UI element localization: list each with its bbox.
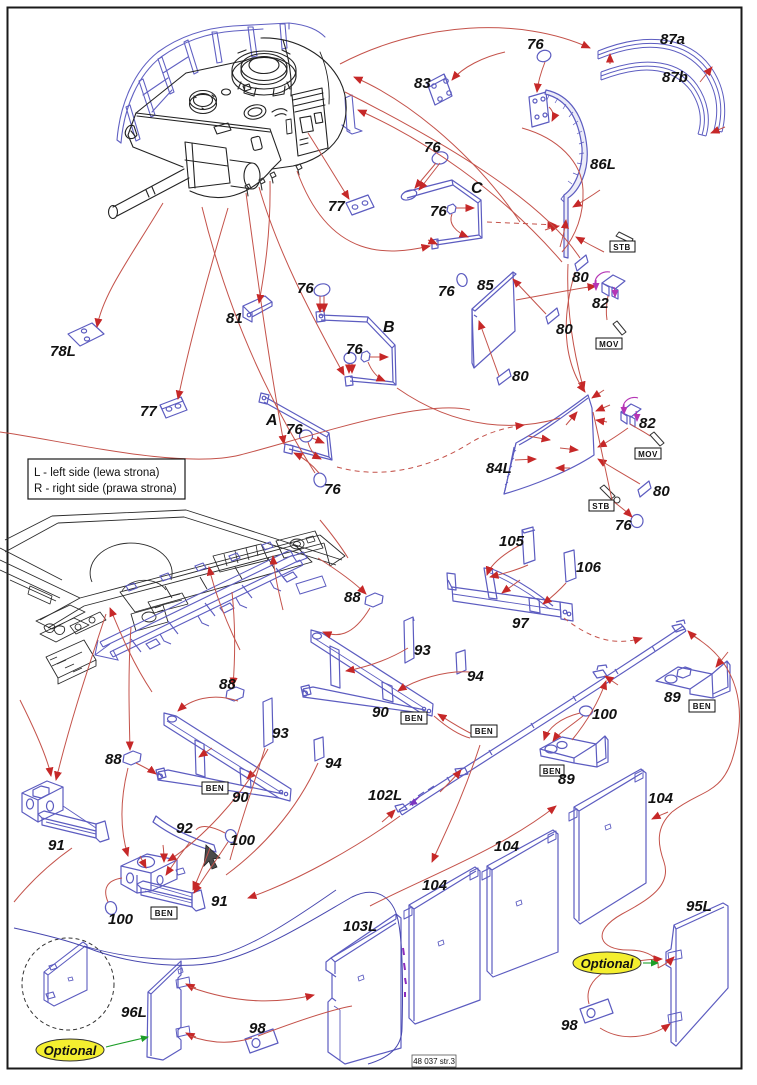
svg-text:R - right side (prawa strona): R - right side (prawa strona) <box>34 483 177 495</box>
svg-text:80: 80 <box>556 321 573 338</box>
svg-text:91: 91 <box>48 837 65 854</box>
svg-text:88: 88 <box>344 589 361 606</box>
svg-text:STB: STB <box>613 243 631 252</box>
svg-text:89: 89 <box>664 689 681 706</box>
svg-text:103L: 103L <box>343 918 377 935</box>
svg-text:B: B <box>383 319 395 336</box>
svg-text:BEN: BEN <box>693 702 711 711</box>
svg-text:MOV: MOV <box>599 340 619 349</box>
svg-text:85: 85 <box>477 277 494 294</box>
svg-text:76: 76 <box>286 421 303 438</box>
svg-text:BEN: BEN <box>155 909 173 918</box>
svg-text:91: 91 <box>211 893 228 910</box>
svg-text:90: 90 <box>372 704 389 721</box>
svg-text:76: 76 <box>430 203 447 220</box>
svg-text:104: 104 <box>494 838 520 855</box>
svg-text:BEN: BEN <box>405 714 423 723</box>
svg-text:Optional: Optional <box>44 1043 97 1058</box>
svg-text:77: 77 <box>328 198 345 215</box>
svg-text:Optional: Optional <box>581 956 634 971</box>
svg-text:80: 80 <box>653 483 670 500</box>
svg-text:76: 76 <box>527 36 544 53</box>
svg-text:77: 77 <box>140 403 157 420</box>
svg-text:81: 81 <box>226 310 243 327</box>
svg-text:95L: 95L <box>686 898 712 915</box>
svg-text:93: 93 <box>414 642 431 659</box>
svg-text:87a: 87a <box>660 31 685 48</box>
svg-text:82: 82 <box>592 295 609 312</box>
svg-text:78L: 78L <box>50 343 76 360</box>
svg-text:98: 98 <box>561 1017 578 1034</box>
svg-text:96L: 96L <box>121 1004 147 1021</box>
svg-text:76: 76 <box>297 280 314 297</box>
svg-text:93: 93 <box>272 725 289 742</box>
svg-text:104: 104 <box>422 877 448 894</box>
svg-text:83: 83 <box>414 75 431 92</box>
svg-text:100: 100 <box>230 832 256 849</box>
svg-text:87b: 87b <box>662 69 688 86</box>
svg-text:76: 76 <box>438 283 455 300</box>
svg-text:STB: STB <box>592 502 610 511</box>
svg-text:48 037 str.3: 48 037 str.3 <box>413 1057 455 1066</box>
svg-text:BEN: BEN <box>475 727 493 736</box>
svg-text:97: 97 <box>512 615 529 632</box>
svg-text:A: A <box>265 412 278 429</box>
svg-text:76: 76 <box>324 481 341 498</box>
svg-text:82: 82 <box>639 415 656 432</box>
svg-text:76: 76 <box>615 517 632 534</box>
svg-text:88: 88 <box>105 751 122 768</box>
svg-text:88: 88 <box>219 676 236 693</box>
svg-text:76: 76 <box>346 341 363 358</box>
svg-text:80: 80 <box>512 368 529 385</box>
svg-text:86L: 86L <box>590 156 616 173</box>
svg-text:106: 106 <box>576 559 602 576</box>
svg-text:L - left side (lewa strona): L - left side (lewa strona) <box>34 467 160 479</box>
svg-text:94: 94 <box>467 668 484 685</box>
svg-text:84L: 84L <box>486 460 512 477</box>
svg-text:100: 100 <box>108 911 134 928</box>
svg-text:102L: 102L <box>368 787 402 804</box>
svg-text:80: 80 <box>572 269 589 286</box>
svg-text:76: 76 <box>424 139 441 156</box>
svg-text:104: 104 <box>648 790 674 807</box>
svg-text:98: 98 <box>249 1020 266 1037</box>
svg-text:BEN: BEN <box>206 784 224 793</box>
svg-text:MOV: MOV <box>638 450 658 459</box>
svg-text:105: 105 <box>499 533 525 550</box>
svg-text:100: 100 <box>592 706 618 723</box>
svg-text:92: 92 <box>176 820 193 837</box>
svg-text:94: 94 <box>325 755 342 772</box>
svg-text:C: C <box>471 180 483 197</box>
svg-text:90: 90 <box>232 789 249 806</box>
svg-text:89: 89 <box>558 771 575 788</box>
